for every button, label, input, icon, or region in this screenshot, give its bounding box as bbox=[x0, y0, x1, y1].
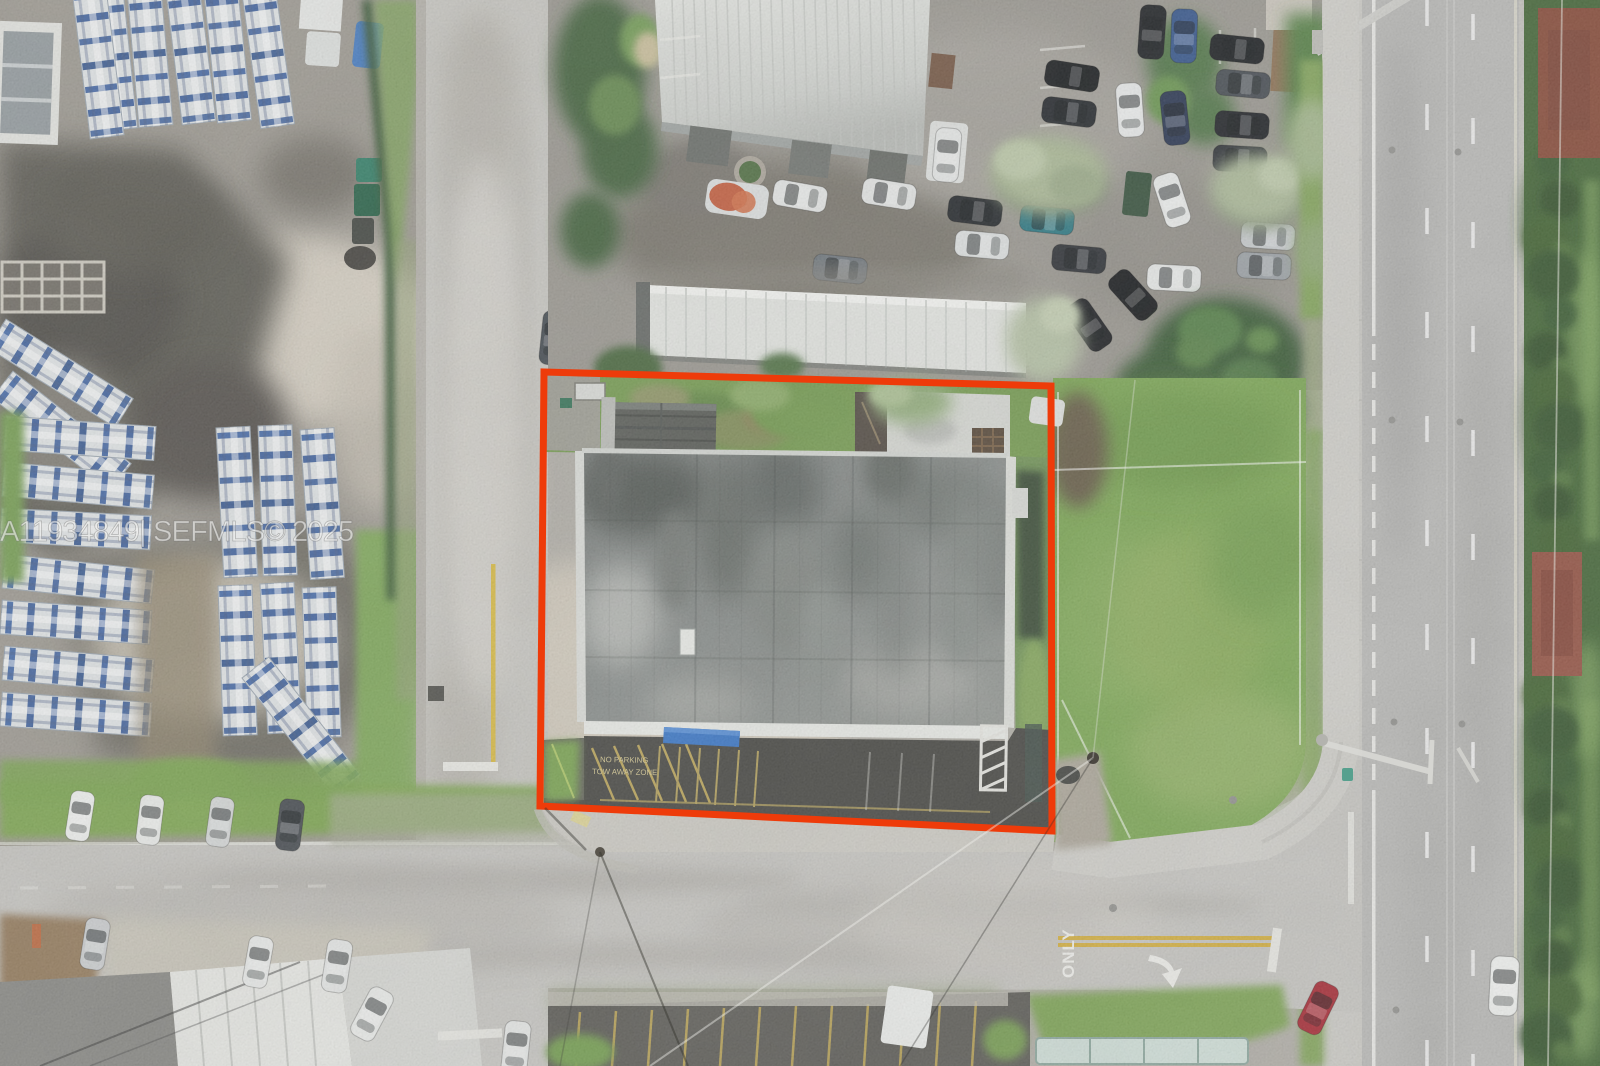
svg-text:A11934849| SEFMLS© 2025: A11934849| SEFMLS© 2025 bbox=[0, 516, 353, 548]
